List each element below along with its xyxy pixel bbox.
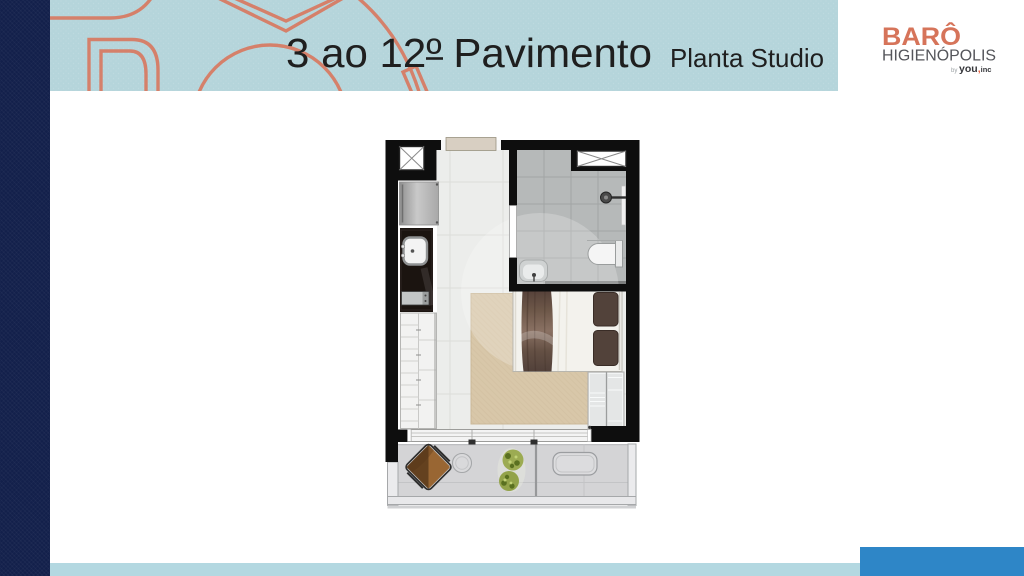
svg-text:Planta Studio: Planta Studio: [670, 43, 824, 73]
svg-text:BARÔ: BARÔ: [882, 21, 961, 51]
svg-text:3 ao 12º Pavimento: 3 ao 12º Pavimento: [286, 30, 652, 76]
